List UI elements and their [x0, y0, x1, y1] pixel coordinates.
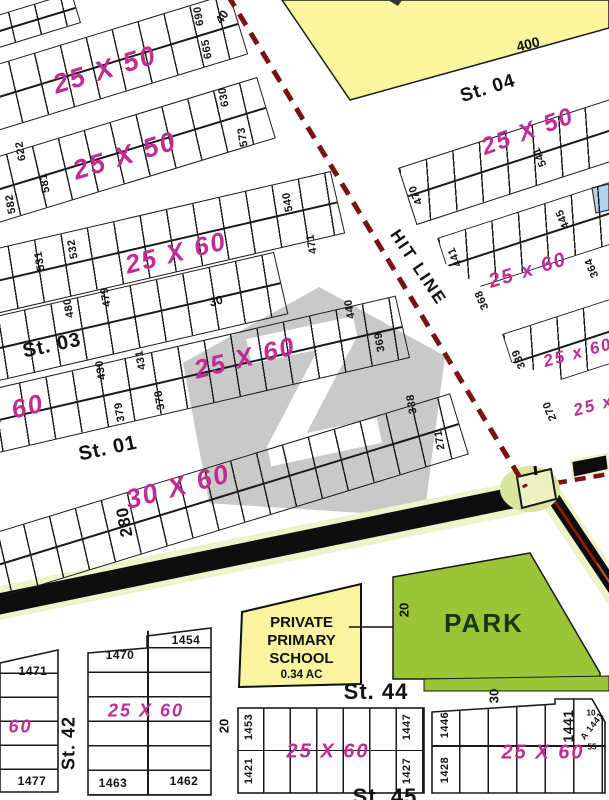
- dim-label-55: 55: [588, 743, 597, 752]
- plot-number-1453: 1453: [243, 714, 255, 740]
- plot-number-1462: 1462: [170, 774, 199, 788]
- scheme-map: Z: [0, 0, 609, 800]
- plot-number-1463: 1463: [99, 776, 128, 790]
- street-label-st-44: St. 44: [344, 679, 409, 705]
- plot-number-1477: 1477: [18, 774, 47, 788]
- dim-label-10: 10: [587, 709, 596, 718]
- size-label-25-x-60: 25 X 60: [502, 742, 585, 765]
- school-area: 0.34 AC: [243, 669, 360, 683]
- park-label: PARK: [428, 608, 540, 639]
- dim-label-20: 20: [397, 603, 412, 617]
- dim-label-20: 20: [217, 719, 232, 733]
- plot-number-1421: 1421: [243, 758, 255, 784]
- dim-label-30: 30: [487, 689, 502, 703]
- school-line-3: SCHOOL: [243, 650, 360, 668]
- plot-number-1470: 1470: [106, 648, 135, 662]
- plot-number-1471: 1471: [19, 664, 48, 678]
- plot-number-1428: 1428: [439, 757, 451, 783]
- school-line-2: PRIMARY: [243, 632, 360, 650]
- plot-number-1454: 1454: [172, 633, 201, 647]
- plot-number-1427: 1427: [401, 758, 413, 784]
- school-line-1: PRIVATE: [243, 614, 360, 632]
- plot-number-1441: 1441: [560, 709, 576, 742]
- yellow-corner-block: [282, 0, 609, 100]
- size-label-25-x-60: 25 X 60: [287, 741, 370, 764]
- plot-number-1446: 1446: [439, 712, 451, 738]
- school-label: PRIVATE PRIMARY SCHOOL 0.34 AC: [243, 614, 360, 683]
- plot-number-1447: 1447: [401, 714, 413, 740]
- park-strip: [424, 676, 609, 691]
- size-label-x-60: X 60: [0, 717, 33, 738]
- size-label-25-x-60: 25 X 60: [108, 701, 184, 722]
- street-label-st-42: St. 42: [59, 716, 80, 770]
- diamond-tick: [535, 466, 536, 475]
- street-label-st-45: St. 45: [353, 784, 418, 800]
